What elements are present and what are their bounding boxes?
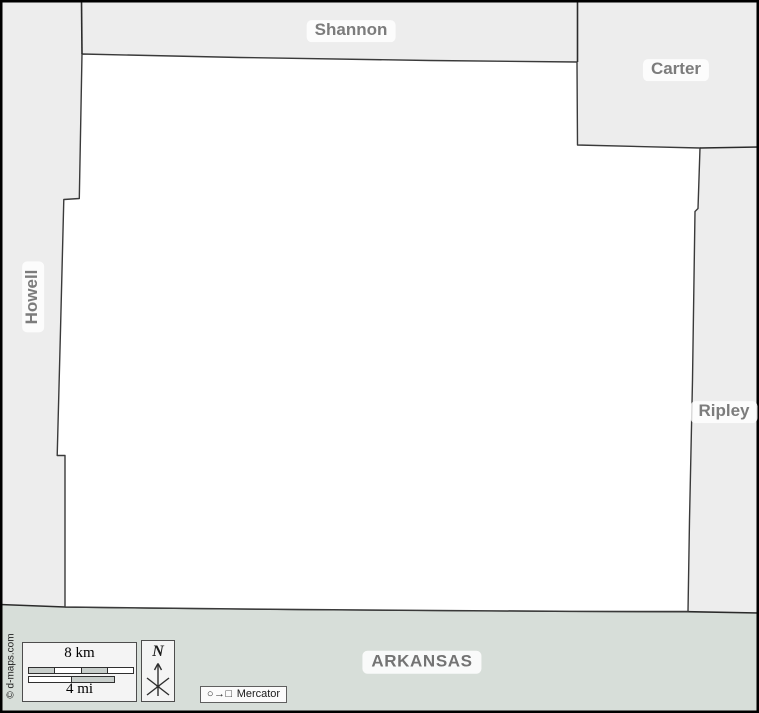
scale-bar-km (28, 667, 134, 674)
projection-box: ○→□ Mercator (200, 686, 287, 703)
compass-north-label: N (142, 644, 174, 660)
label-howell: Howell (22, 262, 44, 333)
projection-glyphs-icon: ○→□ (207, 689, 233, 700)
scale-segment (29, 668, 54, 673)
county-map-svg (0, 0, 759, 713)
scale-segment (54, 668, 80, 673)
compass-arrow-icon (143, 661, 173, 699)
scale-mi-label: 4 mi (23, 681, 136, 698)
scale-km-label: 8 km (23, 645, 136, 662)
map-canvas: Shannon Carter Howell Ripley ARKANSAS 8 … (0, 0, 759, 713)
label-arkansas: ARKANSAS (362, 651, 481, 674)
label-shannon: Shannon (307, 20, 396, 42)
label-carter: Carter (643, 59, 709, 81)
howell-shannon-border (82, 0, 83, 54)
label-ripley: Ripley (690, 401, 757, 423)
scale-segment (107, 668, 133, 673)
compass-box: N (141, 640, 175, 702)
projection-name: Mercator (237, 689, 280, 700)
scale-segment (81, 668, 107, 673)
copyright-credit: © d-maps.com (6, 633, 17, 698)
scale-bar-box: 8 km 4 mi (22, 642, 137, 702)
carter-ripley-border (700, 147, 759, 148)
